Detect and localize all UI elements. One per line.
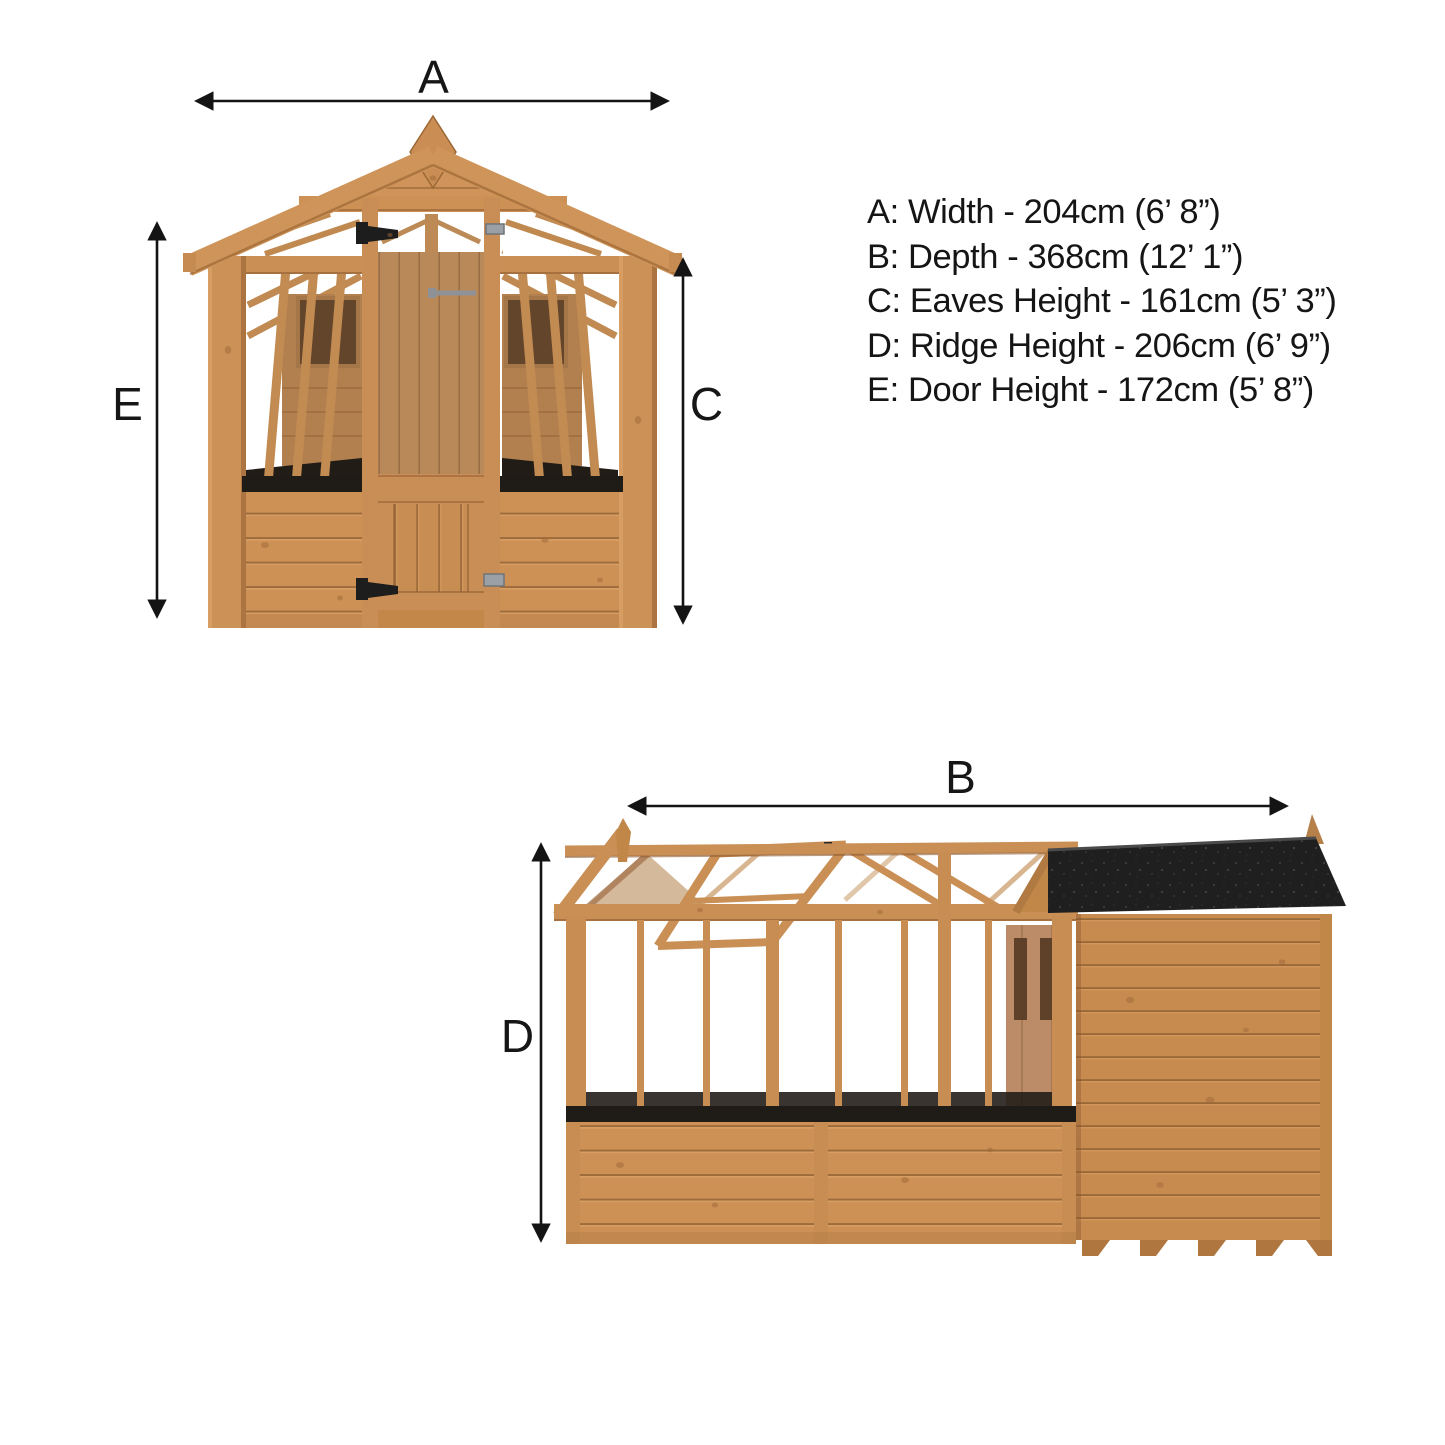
- spec-line-depth: B: Depth - 368cm (12’ 1”): [867, 235, 1337, 280]
- spec-line-eaves-height: C: Eaves Height - 161cm (5’ 3”): [867, 279, 1337, 324]
- front-corner-post-right: [619, 256, 657, 628]
- door-handle: [484, 574, 504, 586]
- door-threshold: [378, 610, 484, 628]
- dimension-label-c: C: [671, 377, 741, 431]
- side-corner-post: [566, 916, 586, 1108]
- spec-line-door-height: E: Door Height - 172cm (5’ 8”): [867, 368, 1337, 413]
- cladding-stile: [814, 1122, 828, 1244]
- side-staging-sill: [566, 1106, 1076, 1122]
- door-jamb-right: [484, 198, 500, 628]
- ridge-beam: [565, 847, 1078, 851]
- dimension-label-e: E: [92, 377, 162, 431]
- shed-corner-trim: [1320, 914, 1332, 1240]
- front-corner-post-left: [208, 256, 246, 628]
- side-eaves-beam: [554, 904, 1078, 921]
- dimension-spec-list: A: Width - 204cm (6’ 8”) B: Depth - 368c…: [867, 190, 1337, 413]
- spec-line-width: A: Width - 204cm (6’ 8”): [867, 190, 1337, 235]
- door-interior-view: [378, 252, 484, 476]
- side-corner-post: [1052, 916, 1072, 1108]
- spec-line-ridge-height: D: Ridge Height - 206cm (6’ 9”): [867, 324, 1337, 369]
- dimension-label-d: D: [482, 1009, 552, 1063]
- door: [356, 198, 504, 628]
- diagram-canvas: A B C D E A: Width - 204cm (6’ 8”) B: De…: [0, 0, 1445, 1445]
- door-latch-top: [486, 224, 504, 234]
- shed-wall-cladding: [1076, 914, 1332, 1240]
- front-left-glazing: [246, 250, 362, 478]
- door-jamb-left: [362, 198, 378, 628]
- front-elevation: [183, 116, 682, 628]
- front-right-glazing: [502, 250, 618, 478]
- door-mid-rail: [378, 474, 484, 504]
- shed-feet: [1082, 1240, 1332, 1256]
- dimension-label-b: B: [925, 750, 995, 804]
- dimension-label-a: A: [398, 50, 468, 104]
- interior-floor-shadow: [572, 1092, 1070, 1106]
- side-elevation: [554, 814, 1346, 1256]
